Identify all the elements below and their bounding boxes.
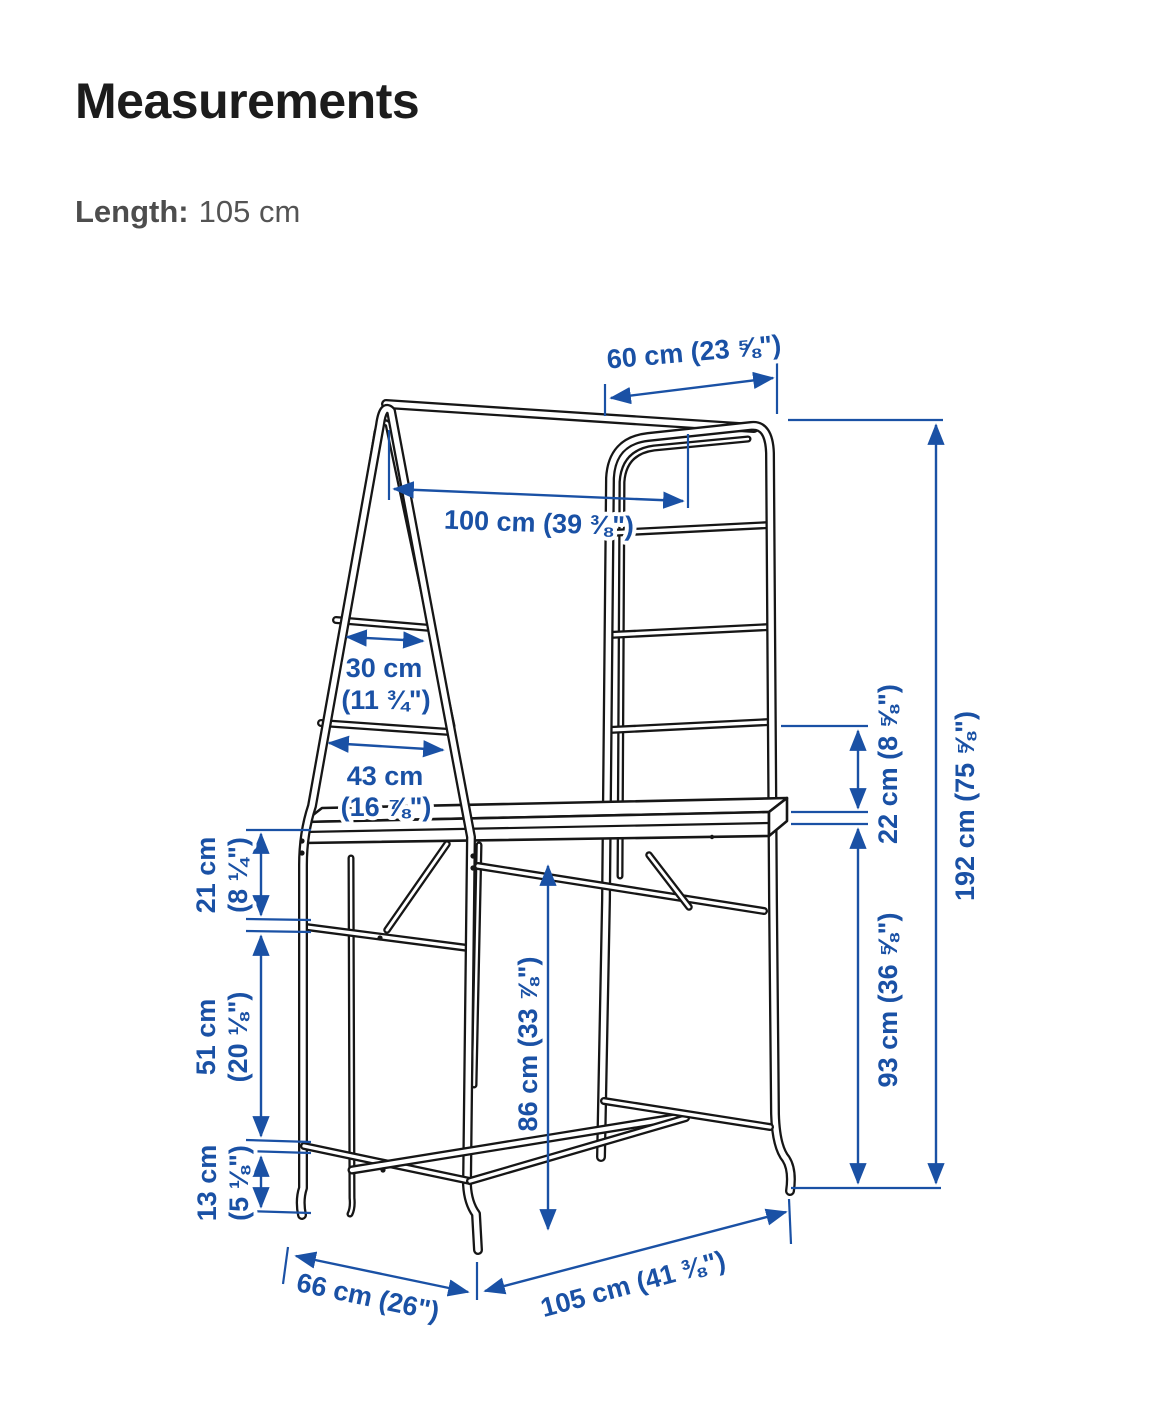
dim-top-width: 60 cm (23 ⅝") [606, 329, 783, 374]
dim-rail-length: 100 cm (39 ⅜") [444, 505, 635, 542]
svg-text:51 cm: 51 cm [191, 999, 221, 1076]
dim-right-lower: 93 cm (36 ⅝") [873, 913, 903, 1088]
svg-text:(16 ⅞"): (16 ⅞") [341, 792, 432, 822]
dim-depth: 66 cm (26") [294, 1267, 442, 1326]
svg-text:43 cm: 43 cm [347, 761, 424, 791]
dim-left-top: 21 cm (8 ¼") [191, 837, 253, 914]
dim-ladder-upper: 30 cm (11 ¾") [341, 653, 430, 715]
svg-text:30 cm: 30 cm [346, 653, 423, 683]
svg-text:(11 ¾"): (11 ¾") [341, 685, 430, 715]
svg-text:13 cm: 13 cm [192, 1145, 222, 1222]
svg-text:21 cm: 21 cm [191, 837, 221, 914]
dim-ladder-lower: 43 cm (16 ⅞") [341, 761, 432, 822]
svg-text:(5 ⅛"): (5 ⅛") [224, 1145, 254, 1221]
measurement-diagram: 60 cm (23 ⅝") 100 cm (39 ⅜") 30 cm (11 ¾… [0, 0, 1170, 1415]
measurements-page: Measurements Length:105 cm [0, 0, 1170, 1415]
dim-table-height: 86 cm (33 ⅞") [513, 957, 543, 1132]
dim-length: 105 cm (41 ⅜") [537, 1245, 728, 1323]
dim-total-height: 192 cm (75 ⅝") [950, 711, 980, 901]
svg-text:(20 ⅛"): (20 ⅛") [223, 992, 253, 1083]
dim-left-mid: 51 cm (20 ⅛") [191, 992, 253, 1083]
dim-right-gap: 22 cm (8 ⅝") [873, 684, 903, 844]
svg-text:(8 ¼"): (8 ¼") [223, 837, 253, 913]
dim-left-bot: 13 cm (5 ⅛") [192, 1145, 254, 1222]
